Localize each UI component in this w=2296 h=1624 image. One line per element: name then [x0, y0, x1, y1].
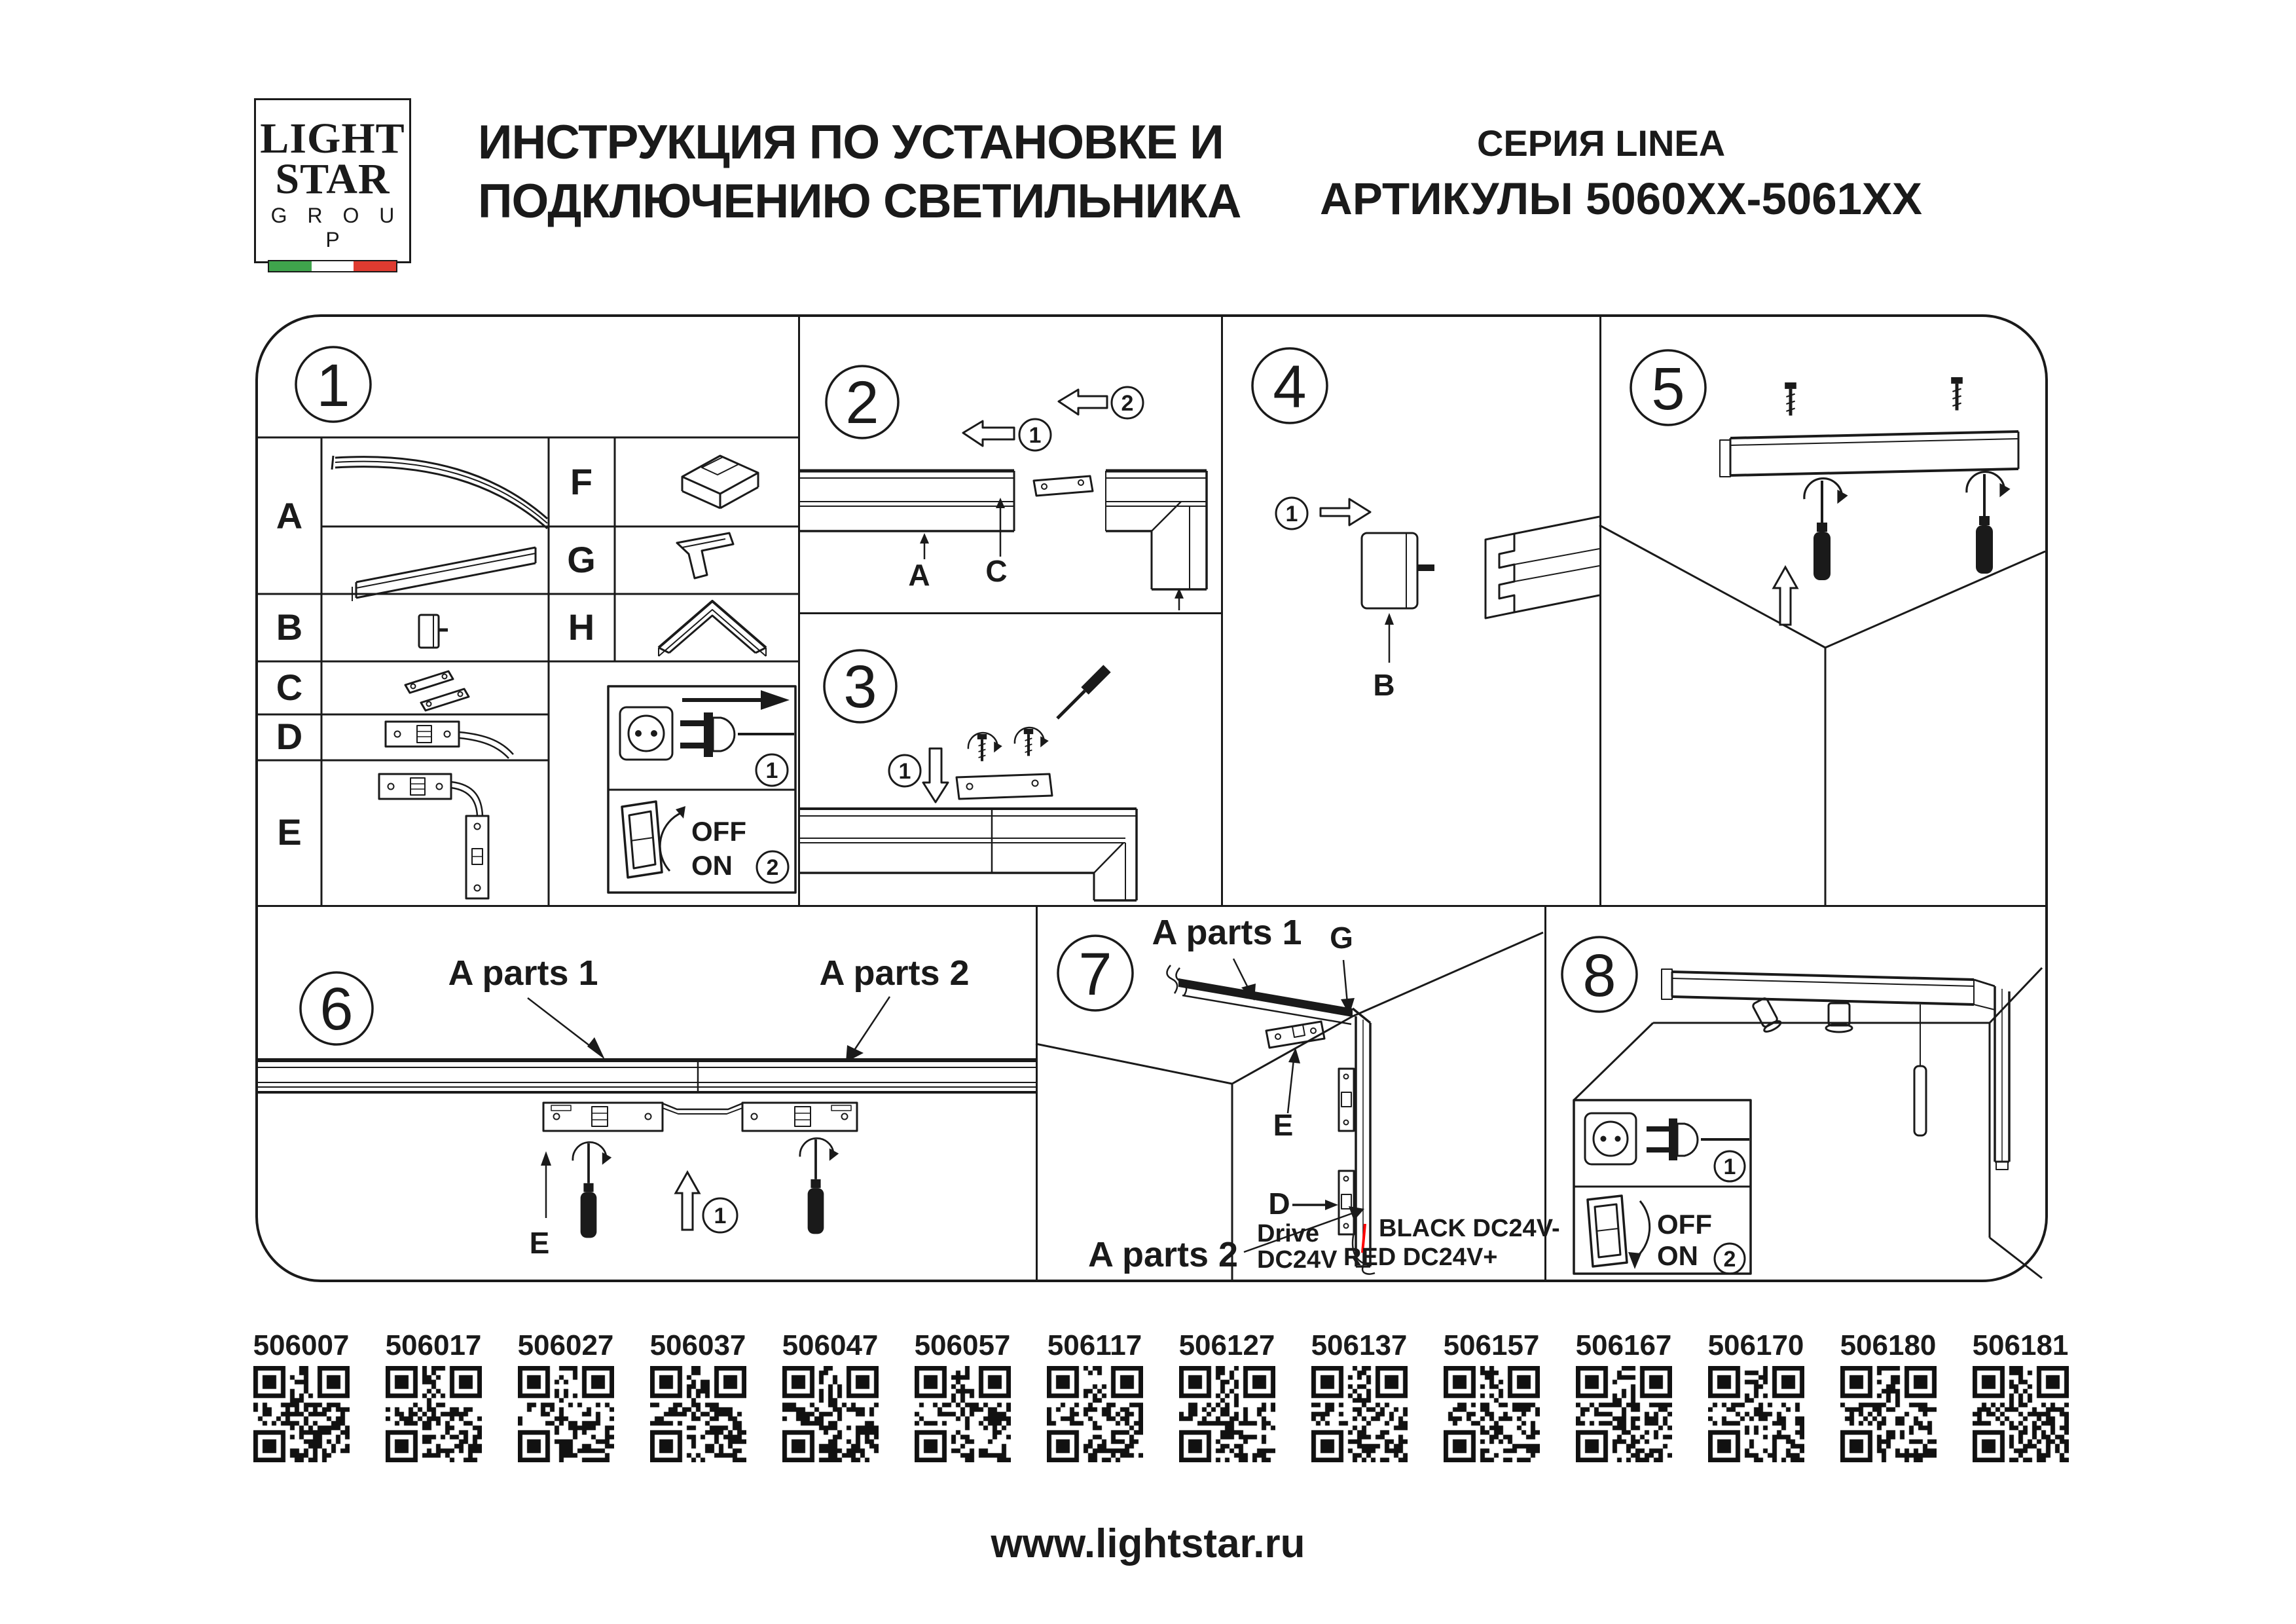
part-label-a: A	[276, 495, 302, 536]
website-url: www.lightstar.ru	[0, 1521, 2296, 1567]
d-driver	[1339, 1171, 1354, 1234]
panel-2-label-c: C	[985, 554, 1007, 588]
panel-7-label-e: E	[1273, 1108, 1294, 1142]
slide-arrow-2-icon: 2	[1059, 387, 1143, 418]
part-c-connector-plates	[405, 671, 469, 710]
corner-pointer-arrow	[1175, 588, 1184, 610]
panel-3-step-1: 1	[899, 759, 911, 784]
switch-on-label: ON	[691, 850, 733, 881]
part-g-corner-connector	[677, 533, 733, 578]
part-label-c: C	[276, 667, 302, 708]
italian-flag-icon	[268, 260, 397, 272]
screwdriver-icon	[1804, 479, 1848, 580]
a-parts-2-label: A parts 2	[819, 953, 969, 993]
qr-code	[253, 1366, 350, 1462]
instruction-sheet: { "header": { "logo": { "word1": "LIGHT"…	[0, 0, 2296, 1624]
switch-off-label: OFF	[1657, 1209, 1712, 1240]
part-label-f: F	[570, 461, 592, 502]
e-driver-on-ceiling	[1266, 1022, 1324, 1048]
qr-item: 506157	[1442, 1329, 1540, 1462]
qr-item: 506181	[1971, 1329, 2069, 1462]
step-1-badge: 1	[756, 754, 788, 786]
panel-2-label-a: A	[908, 558, 930, 592]
panel-8-step-1: 1	[1724, 1154, 1736, 1179]
part-label-h: H	[568, 606, 594, 648]
track-a-callout: A	[908, 533, 930, 592]
qr-code	[782, 1366, 879, 1462]
switch-on-label: ON	[1657, 1240, 1698, 1271]
panel-6-label-e: E	[530, 1226, 550, 1260]
spot-lamp-cylinder	[1826, 1003, 1852, 1032]
a-parts-2-label: A parts 2	[1088, 1235, 1238, 1274]
qr-article: 506180	[1839, 1329, 1937, 1366]
step-2-badge: 2	[757, 851, 788, 883]
screwdriver-icon	[1057, 669, 1107, 718]
panel-5-number-badge: 5	[1631, 350, 1705, 425]
track-a-side-view	[798, 471, 1014, 531]
part-d-driver	[386, 722, 513, 758]
a-parts-1-leader	[528, 998, 605, 1060]
panel-3-fix-plate: 3 1	[798, 612, 1221, 905]
power-connection-box: 1 OFF ON 2	[608, 686, 795, 893]
outlet-icon	[620, 707, 672, 760]
panel-7-label-d: D	[1268, 1187, 1290, 1221]
corner-track-piece	[1106, 471, 1207, 589]
qr-item: 506037	[649, 1329, 747, 1462]
articles-range: АРТИКУЛЫ 5060XX-5061XX	[1320, 173, 1922, 225]
part-e-driver-with-track	[379, 774, 488, 898]
qr-item: 506137	[1310, 1329, 1408, 1462]
panel-4-step-1: 1	[1286, 502, 1298, 526]
panel-8-step-2: 2	[1724, 1247, 1736, 1272]
panel-2-join-tracks: 2 1 2	[798, 317, 1221, 612]
g-part-leader	[1341, 960, 1355, 1015]
part-label-b: B	[276, 606, 302, 648]
document-title-line-1: ИНСТРУКЦИЯ ПО УСТАНОВКЕ И	[478, 115, 1224, 170]
screwdriver-icon	[800, 1138, 839, 1234]
panel-1-number: 1	[316, 352, 350, 419]
screw-icon	[1951, 377, 1963, 411]
panel-6-step-1: 1	[714, 1204, 727, 1228]
panel-6-number-badge: 6	[301, 972, 373, 1044]
track-on-ceiling	[1720, 432, 2018, 477]
qr-code	[1973, 1366, 2069, 1462]
panel-8-number: 8	[1582, 942, 1616, 1009]
panel-6-join-a-parts: 6 A parts 1 A parts 2	[258, 905, 1036, 1280]
qr-article: 506117	[1046, 1329, 1144, 1366]
driver-pair	[543, 1103, 857, 1131]
qr-article: 506027	[517, 1329, 615, 1366]
qr-item: 506127	[1178, 1329, 1276, 1462]
a-parts-1-label: A parts 1	[448, 953, 598, 993]
qr-code	[1576, 1366, 1672, 1462]
qr-item: 506007	[252, 1329, 350, 1462]
panel-2-step-2: 2	[1121, 391, 1134, 416]
logo-word-star: STAR	[256, 159, 409, 200]
qr-article: 506057	[913, 1329, 1011, 1366]
panel-2-number-badge: 2	[826, 366, 898, 438]
flag-green	[269, 261, 312, 271]
logo-word-group: G R O U P	[263, 204, 409, 252]
panel-7-number: 7	[1078, 941, 1112, 1008]
panel-7-corner-wiring: 7 A parts 1 G	[1036, 905, 1544, 1280]
qr-code	[1840, 1366, 1937, 1462]
panel-4-end-cap: 4 1 B	[1221, 317, 1599, 905]
qr-article: 506167	[1575, 1329, 1673, 1366]
qr-item: 506167	[1575, 1329, 1673, 1462]
series-name: СЕРИЯ LINEA	[1477, 122, 1725, 164]
push-up-arrow-icon	[1774, 567, 1797, 625]
qr-article: 506127	[1178, 1329, 1276, 1366]
end-cap-b	[1362, 533, 1434, 608]
wire-red-label: RED DC24V+	[1343, 1244, 1497, 1271]
part-b-end-cap	[419, 615, 448, 648]
qr-item: 506017	[384, 1329, 483, 1462]
plug-icon	[680, 712, 794, 757]
logo-word-light: LIGHT	[256, 119, 409, 159]
panel-3-number-badge: 3	[824, 650, 896, 722]
insert-arrow-icon	[682, 690, 790, 710]
ceiling-track	[1662, 969, 1995, 1010]
joined-track-side-view	[258, 1060, 1036, 1092]
qr-item: 506057	[913, 1329, 1011, 1462]
panel-5-mount-ceiling: 5	[1599, 317, 2045, 905]
step-1-number: 1	[766, 758, 778, 783]
qr-code	[1179, 1366, 1275, 1462]
qr-code	[518, 1366, 614, 1462]
e-part-callout: E	[530, 1151, 551, 1260]
spot-lamp-angled	[1751, 997, 1782, 1033]
part-label-d: D	[276, 716, 302, 757]
room-corner-lines	[1599, 525, 2045, 905]
qr-item: 506170	[1707, 1329, 1805, 1462]
qr-article: 506007	[252, 1329, 350, 1366]
qr-code	[1444, 1366, 1540, 1462]
panel-1-number-badge: 1	[296, 347, 371, 422]
screwdriver-icon	[573, 1142, 611, 1238]
panel-8-finished-install: 8	[1544, 905, 2045, 1280]
panel-3-number: 3	[843, 654, 877, 720]
panel-4-label-b: B	[1373, 668, 1394, 702]
push-up-step-1: 1	[676, 1172, 737, 1232]
power-connection-box: 1 OFF ON 2	[1574, 1100, 1751, 1274]
screw-icon	[1785, 382, 1796, 416]
e-part-callout: E	[1273, 1048, 1300, 1142]
slide-arrow-1-icon: 1	[963, 419, 1051, 451]
panel-4-number-badge: 4	[1252, 348, 1327, 423]
qr-article: 506047	[781, 1329, 879, 1366]
rocker-switch-icon	[622, 802, 685, 877]
qr-code	[386, 1366, 482, 1462]
a-parts-2-leader	[846, 997, 890, 1062]
flag-red	[354, 261, 396, 271]
switch-off-label: OFF	[691, 816, 746, 847]
pendant-lamp	[1914, 1005, 1926, 1135]
connector-plate-c	[1034, 476, 1093, 496]
panel-6-number: 6	[319, 976, 353, 1043]
part-label-g: G	[567, 539, 596, 580]
qr-article: 506037	[649, 1329, 747, 1366]
track-a1-edge	[1178, 978, 1353, 1024]
panel-2-step-1: 1	[1029, 423, 1042, 448]
track-a2-vertical	[1353, 1008, 1370, 1266]
part-h-corner-cover	[659, 601, 766, 656]
panel-4-number: 4	[1273, 354, 1306, 420]
panel-1-parts-list: 1 A B C D E F G H	[258, 317, 798, 905]
flag-white	[312, 261, 354, 271]
panel-8-number-badge: 8	[1562, 937, 1637, 1012]
g-part-label: G	[1330, 921, 1353, 955]
qr-code	[650, 1366, 746, 1462]
joined-track-with-corner	[798, 809, 1137, 900]
qr-code	[1047, 1366, 1143, 1462]
d-part-callout: D Drive DC24V	[1257, 1187, 1338, 1274]
connector-plate-with-screws	[957, 728, 1052, 799]
qr-article: 506137	[1310, 1329, 1408, 1366]
wall-driver	[1339, 1069, 1354, 1131]
qr-item: 506027	[517, 1329, 615, 1462]
qr-article: 506170	[1707, 1329, 1805, 1366]
panel-2-number: 2	[845, 369, 879, 436]
part-label-e: E	[277, 811, 301, 853]
a-parts-1-label: A parts 1	[1152, 913, 1302, 952]
qr-code	[915, 1366, 1011, 1462]
drive-label-line2: DC24V	[1257, 1246, 1338, 1274]
qr-item: 506180	[1839, 1329, 1937, 1462]
qr-item: 506047	[781, 1329, 879, 1462]
part-a-curved-track	[332, 456, 547, 528]
qr-article: 506181	[1971, 1329, 2069, 1366]
qr-code-row: 506007 506017 506027 506037 506047 50605…	[252, 1329, 2069, 1462]
track-profile-3d	[1485, 517, 1599, 618]
part-f-straight-connector	[682, 456, 758, 508]
place-arrow-icon: 1	[889, 748, 948, 802]
lightstar-logo: LIGHT STAR G R O U P	[254, 98, 411, 263]
qr-article: 506017	[384, 1329, 483, 1366]
step-2-number: 2	[767, 855, 779, 880]
wire-black-label: BLACK DC24V-	[1379, 1215, 1560, 1242]
qr-code	[1708, 1366, 1804, 1462]
qr-article: 506157	[1442, 1329, 1540, 1366]
qr-code	[1311, 1366, 1408, 1462]
screwdriver-icon	[1967, 472, 2011, 574]
insert-cap-arrow-icon: 1	[1276, 498, 1370, 529]
instruction-diagram: 1 A B C D E F G H	[255, 314, 2048, 1282]
document-title-line-2: ПОДКЛЮЧЕНИЮ СВЕТИЛЬНИКА	[478, 174, 1241, 229]
cap-b-callout: B	[1373, 613, 1394, 702]
panel-7-number-badge: 7	[1058, 936, 1133, 1010]
plate-c-callout: C	[985, 498, 1007, 588]
qr-item: 506117	[1046, 1329, 1144, 1462]
panel-5-number: 5	[1651, 356, 1685, 422]
